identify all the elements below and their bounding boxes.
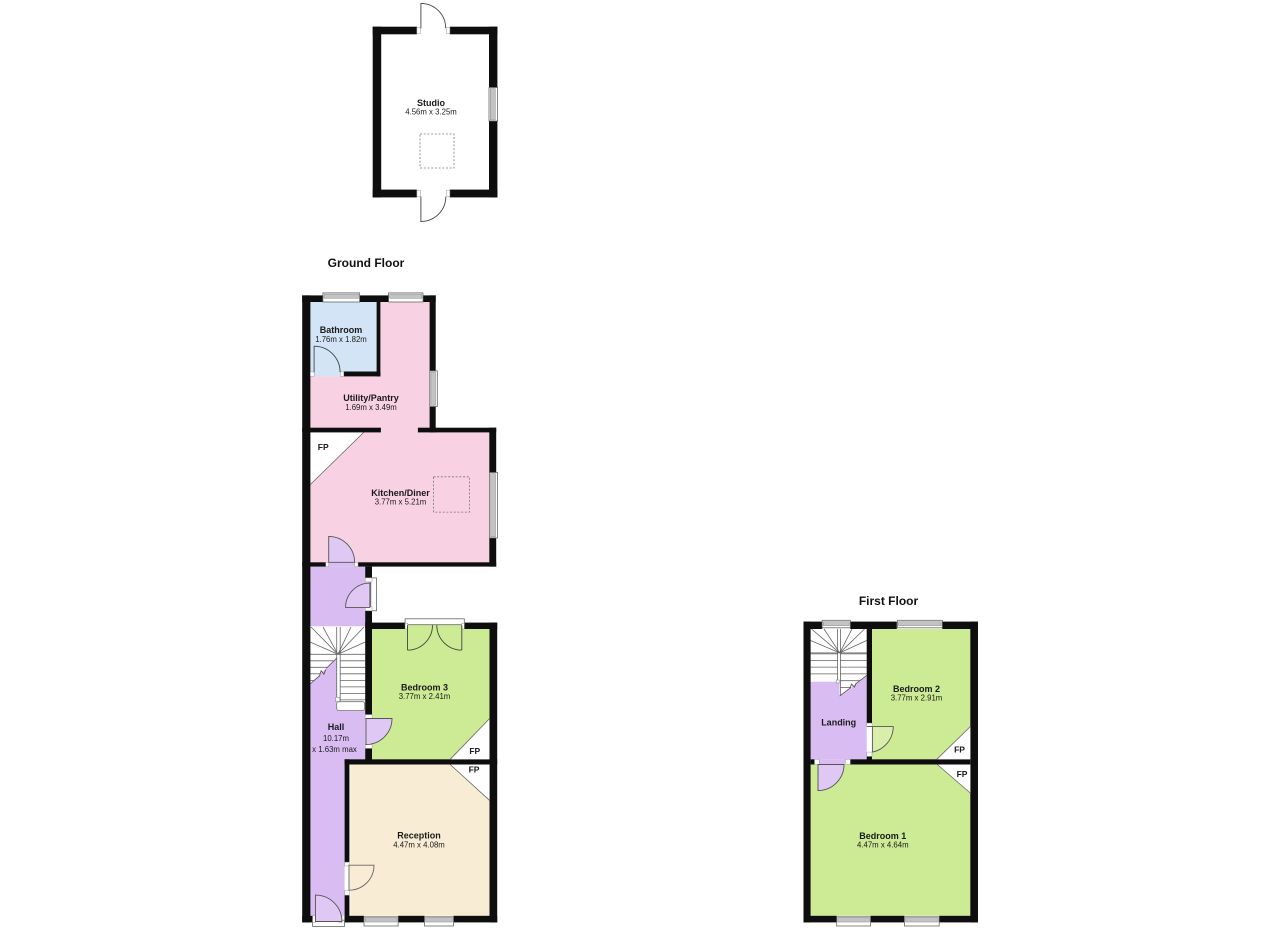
svg-text:FP: FP: [469, 765, 480, 775]
svg-text:10.17m: 10.17m: [323, 734, 349, 743]
svg-text:FP: FP: [954, 744, 965, 754]
svg-text:3.77m x 2.91m: 3.77m x 2.91m: [891, 694, 943, 703]
svg-text:Bedroom 3: Bedroom 3: [401, 683, 448, 693]
svg-text:FP: FP: [957, 769, 968, 779]
svg-text:Bedroom 1: Bedroom 1: [859, 831, 906, 841]
svg-text:3.77m x 5.21m: 3.77m x 5.21m: [375, 498, 427, 507]
svg-text:Bedroom 2: Bedroom 2: [893, 684, 940, 694]
svg-text:Utility/Pantry: Utility/Pantry: [343, 393, 399, 403]
svg-text:First Floor: First Floor: [859, 594, 919, 608]
svg-text:Studio: Studio: [417, 98, 445, 108]
svg-text:1.69m x 3.49m: 1.69m x 3.49m: [345, 403, 397, 412]
svg-text:FP: FP: [318, 442, 329, 452]
svg-text:Bathroom: Bathroom: [320, 325, 363, 335]
svg-text:3.77m x 2.41m: 3.77m x 2.41m: [399, 692, 451, 701]
svg-text:4.56m x 3.25m: 4.56m x 3.25m: [405, 108, 457, 117]
svg-text:Reception: Reception: [397, 831, 441, 841]
svg-text:Hall: Hall: [328, 722, 345, 732]
svg-text:FP: FP: [469, 746, 480, 756]
svg-text:Ground Floor: Ground Floor: [328, 256, 405, 270]
svg-text:Kitchen/Diner: Kitchen/Diner: [371, 488, 430, 498]
svg-text:4.47m x 4.08m: 4.47m x 4.08m: [393, 841, 445, 850]
svg-text:4.47m x 4.64m: 4.47m x 4.64m: [857, 841, 909, 850]
svg-text:1.76m x 1.82m: 1.76m x 1.82m: [315, 335, 367, 344]
svg-text:x 1.63m max: x 1.63m max: [312, 745, 357, 754]
svg-text:Landing: Landing: [821, 718, 856, 728]
